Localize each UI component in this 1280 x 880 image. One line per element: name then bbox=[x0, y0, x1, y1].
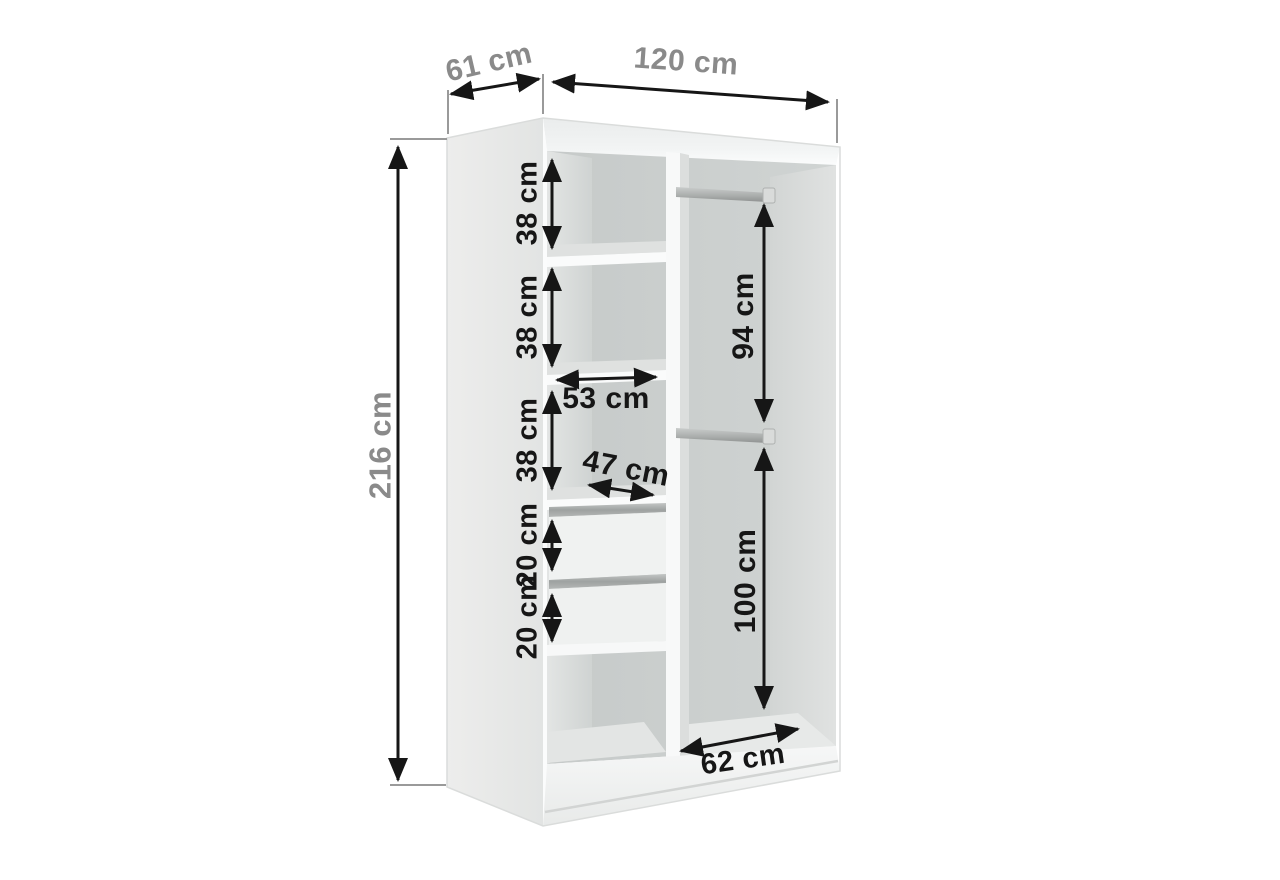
drawer-front bbox=[549, 583, 666, 647]
dim-label-shelf-gap-1: 38 cm bbox=[514, 161, 543, 246]
rail-bracket bbox=[763, 188, 775, 203]
dim-label-height: 216 cm bbox=[365, 391, 396, 499]
wardrobe-dimension-diagram: 61 cm 120 cm 216 cm 38 cm 38 cm 38 cm 20… bbox=[0, 0, 1280, 880]
rail-bracket bbox=[763, 429, 775, 444]
divider-front-edge bbox=[666, 152, 680, 761]
dim-label-drawer-2: 20 cm bbox=[514, 575, 543, 660]
drawer-1 bbox=[549, 503, 666, 580]
wardrobe-illustration bbox=[0, 0, 1280, 880]
right-inner-wall bbox=[770, 165, 836, 746]
dim-label-hanging-upper: 94 cm bbox=[729, 272, 759, 360]
dim-label-shelf-gap-2: 38 cm bbox=[514, 275, 543, 360]
dim-arrow-width bbox=[553, 82, 828, 102]
dim-label-shelf-width: 53 cm bbox=[562, 384, 650, 414]
drawer-front bbox=[549, 512, 666, 580]
dim-label-hanging-lower: 100 cm bbox=[731, 529, 761, 634]
left-front-stile bbox=[543, 118, 547, 826]
divider-panel bbox=[666, 152, 689, 761]
dim-label-width: 120 cm bbox=[633, 43, 740, 80]
drawer-2 bbox=[549, 574, 666, 647]
divider-side-face bbox=[680, 153, 689, 757]
dim-label-shelf-gap-3: 38 cm bbox=[514, 398, 543, 483]
